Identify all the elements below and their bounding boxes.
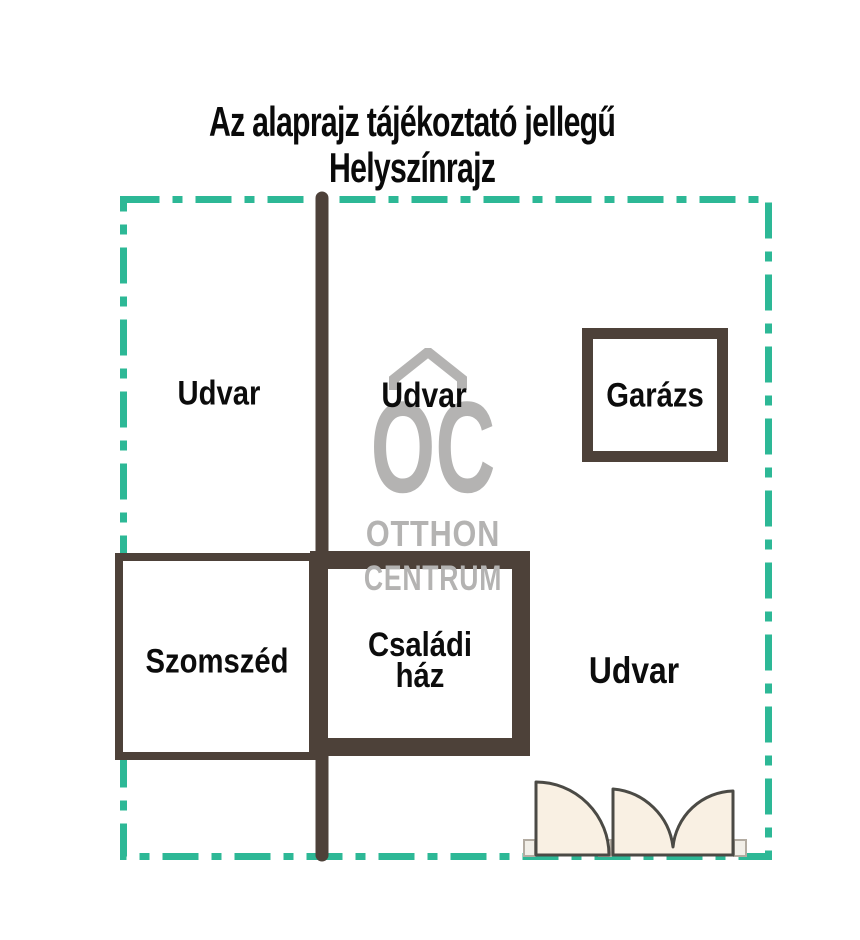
hinge-icon xyxy=(734,840,746,856)
hinge-icon xyxy=(524,840,535,856)
gate-single-swing-icon xyxy=(536,782,609,855)
site-plan-drawing xyxy=(0,0,860,940)
site-plan-page: Az alaprajz tájékoztató jellegű Helyszín… xyxy=(0,0,860,940)
label-yard-top-left: Udvar xyxy=(178,375,261,414)
label-yard-middle: Udvar xyxy=(381,376,466,416)
label-family-house-line2: ház xyxy=(396,657,445,695)
label-neighbor: Szomszéd xyxy=(146,643,289,682)
label-family-house: Családi ház xyxy=(368,630,472,692)
gate-double-swing-icon xyxy=(613,789,733,855)
label-garage: Garázs xyxy=(606,377,704,416)
label-yard-bottom-right: Udvar xyxy=(589,650,679,692)
